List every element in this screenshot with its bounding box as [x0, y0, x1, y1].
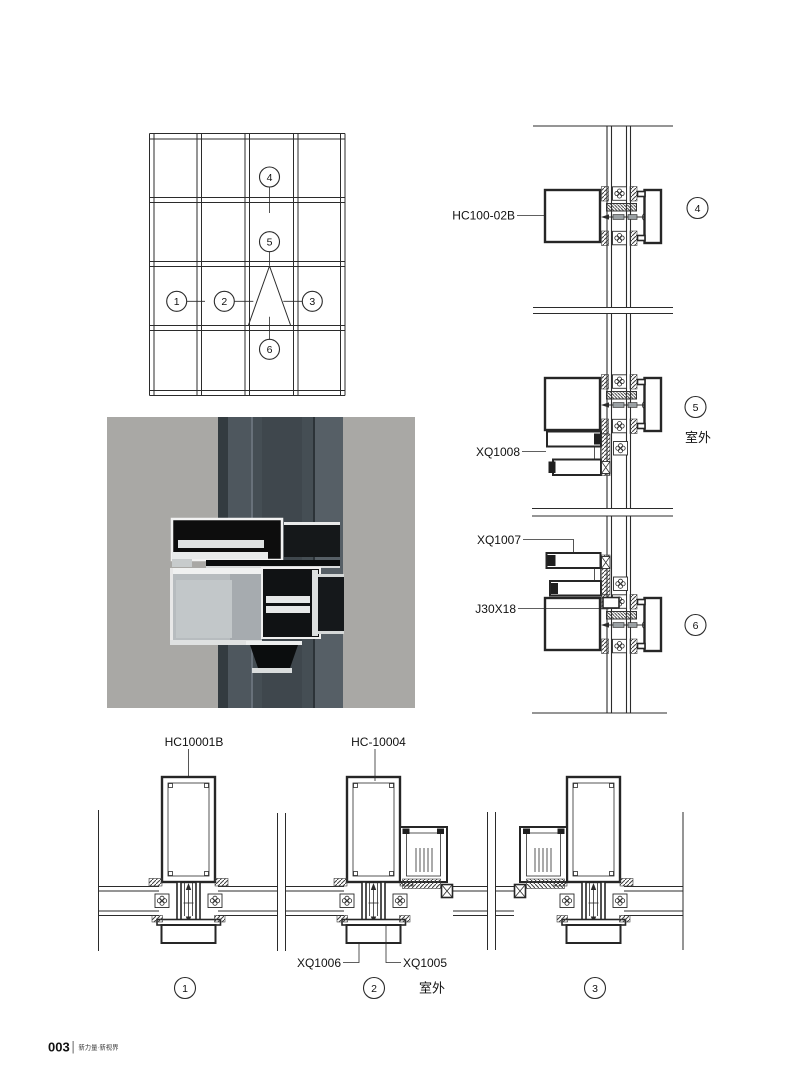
- page-number: 003: [48, 1040, 70, 1055]
- page-canvas: 4 5 1 2 3 6: [0, 0, 800, 1085]
- joint-detail-4: [545, 187, 661, 246]
- section-callout-6: 6: [685, 615, 706, 636]
- elevation-grid-verticals: [150, 134, 346, 396]
- svg-text:XQ1007: XQ1007: [477, 533, 521, 547]
- section-callout-4: 4: [687, 198, 708, 219]
- svg-text:4: 4: [267, 172, 273, 184]
- elevation-callout-5: 5: [260, 232, 280, 266]
- svg-text:6: 6: [693, 620, 699, 632]
- plan-vent-detail-3: [515, 827, 568, 898]
- svg-text:HC-10004: HC-10004: [351, 735, 406, 749]
- svg-text:2: 2: [221, 296, 227, 308]
- label-hc100-02b: HC100-02B: [452, 209, 544, 223]
- label-xq1006: XQ1006: [297, 944, 359, 970]
- footer-tagline: 新力量·新视界: [79, 1043, 120, 1052]
- elevation-grid-horizontals: [150, 134, 346, 396]
- svg-text:1: 1: [182, 983, 188, 995]
- label-xq1007: XQ1007: [477, 533, 574, 554]
- plan-callout-2: 2: [364, 978, 385, 999]
- vertical-section-details: HC100-02B XQ1008 XQ1007 J30X18 4 5 室外 6: [452, 126, 711, 713]
- page-footer: 003 新力量·新视界: [48, 1040, 119, 1055]
- svg-text:6: 6: [267, 344, 273, 356]
- svg-text:2: 2: [371, 983, 377, 995]
- label-hc-10004: HC-10004: [351, 735, 406, 781]
- product-photo: [107, 417, 415, 708]
- plan-callout-1: 1: [175, 978, 196, 999]
- outdoor-label-bottom: 室外: [419, 981, 445, 996]
- joint-detail-5: [545, 375, 661, 434]
- plan-section-details: HC10001B HC-10004 XQ1006 XQ1005 1 2 室外 3: [99, 735, 684, 999]
- svg-text:5: 5: [693, 402, 699, 414]
- plan-callout-3: 3: [585, 978, 606, 999]
- vent-frames-detail-5: [547, 432, 628, 476]
- svg-text:3: 3: [592, 983, 598, 995]
- svg-text:3: 3: [309, 296, 315, 308]
- elevation-callout-6: 6: [260, 317, 280, 360]
- section-callout-5: 5: [685, 397, 706, 418]
- elevation-callout-2: 2: [214, 291, 253, 311]
- outdoor-label-right: 室外: [685, 430, 711, 445]
- elevation-callout-4: 4: [260, 167, 280, 213]
- svg-text:J30X18: J30X18: [475, 602, 516, 616]
- svg-text:1: 1: [174, 296, 180, 308]
- svg-text:5: 5: [267, 237, 273, 249]
- elevation-callout-3: 3: [283, 291, 322, 311]
- footer-divider: [73, 1041, 74, 1054]
- elevation-drawing: 4 5 1 2 3 6: [150, 134, 346, 396]
- svg-text:XQ1006: XQ1006: [297, 956, 341, 970]
- svg-text:XQ1008: XQ1008: [476, 445, 520, 459]
- plan-vent-detail-2: [400, 827, 453, 898]
- label-xq1008: XQ1008: [476, 445, 546, 459]
- catalog-page: 4 5 1 2 3 6: [0, 0, 800, 1085]
- vent-opening-symbol: [249, 266, 291, 325]
- elevation-callout-1: 1: [167, 291, 205, 311]
- svg-text:XQ1005: XQ1005: [403, 956, 447, 970]
- connector-step: [603, 598, 619, 609]
- svg-text:HC10001B: HC10001B: [165, 735, 224, 749]
- plan-mullion-1: [149, 777, 228, 943]
- svg-text:4: 4: [695, 203, 701, 215]
- label-hc10001b: HC10001B: [165, 735, 224, 776]
- glass-lines-plan: [99, 887, 684, 916]
- svg-text:HC100-02B: HC100-02B: [452, 209, 515, 223]
